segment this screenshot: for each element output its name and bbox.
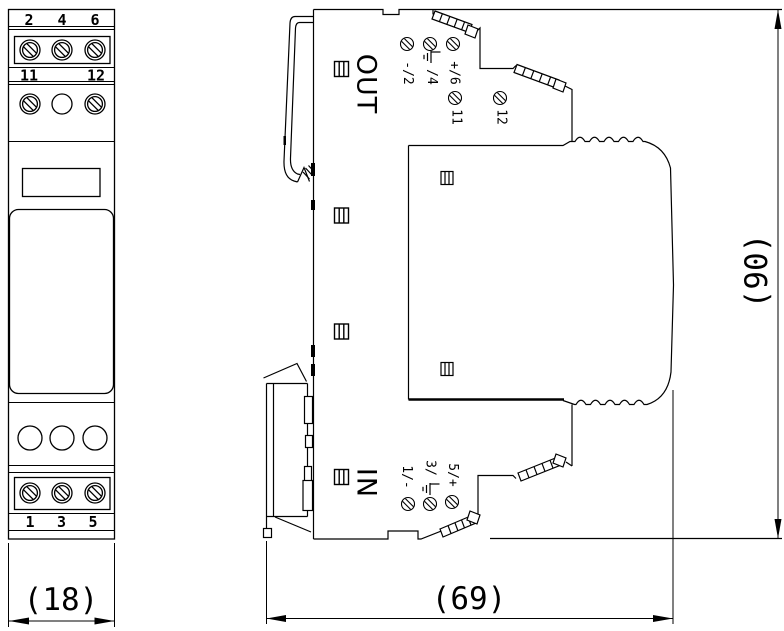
aux-terminal-label: 12 [494,109,509,125]
out-label: OUT [351,54,382,115]
terminal-number: 4 [57,11,66,29]
in-terminal-label: 5/+ [445,463,460,487]
technical-drawing-canvas: 2 4 6 11 12 1 3 5 [0,0,784,631]
terminal-number: 6 [90,11,99,29]
in-terminal-label: 1/- [399,465,414,488]
out-terminal-label: /4 [424,69,439,85]
terminal-number: 2 [24,11,33,29]
terminal-number: 11 [20,67,38,85]
out-terminal-label: -/2 [400,61,415,84]
width-dimension-text: (18) [24,582,99,618]
in-label: IN [351,468,382,498]
terminal-number: 5 [88,513,97,531]
out-terminal-label: +/6 [447,61,462,84]
depth-dimension-text: (69) [432,581,507,617]
height-dimension-text: (90) [739,234,775,309]
in-terminal-label: 3/ [423,460,438,476]
drawing-background [0,0,784,631]
terminal-number: 1 [25,513,34,531]
terminal-number: 3 [57,513,66,531]
terminal-number: 12 [87,67,105,85]
aux-terminal-label: 11 [449,109,464,125]
